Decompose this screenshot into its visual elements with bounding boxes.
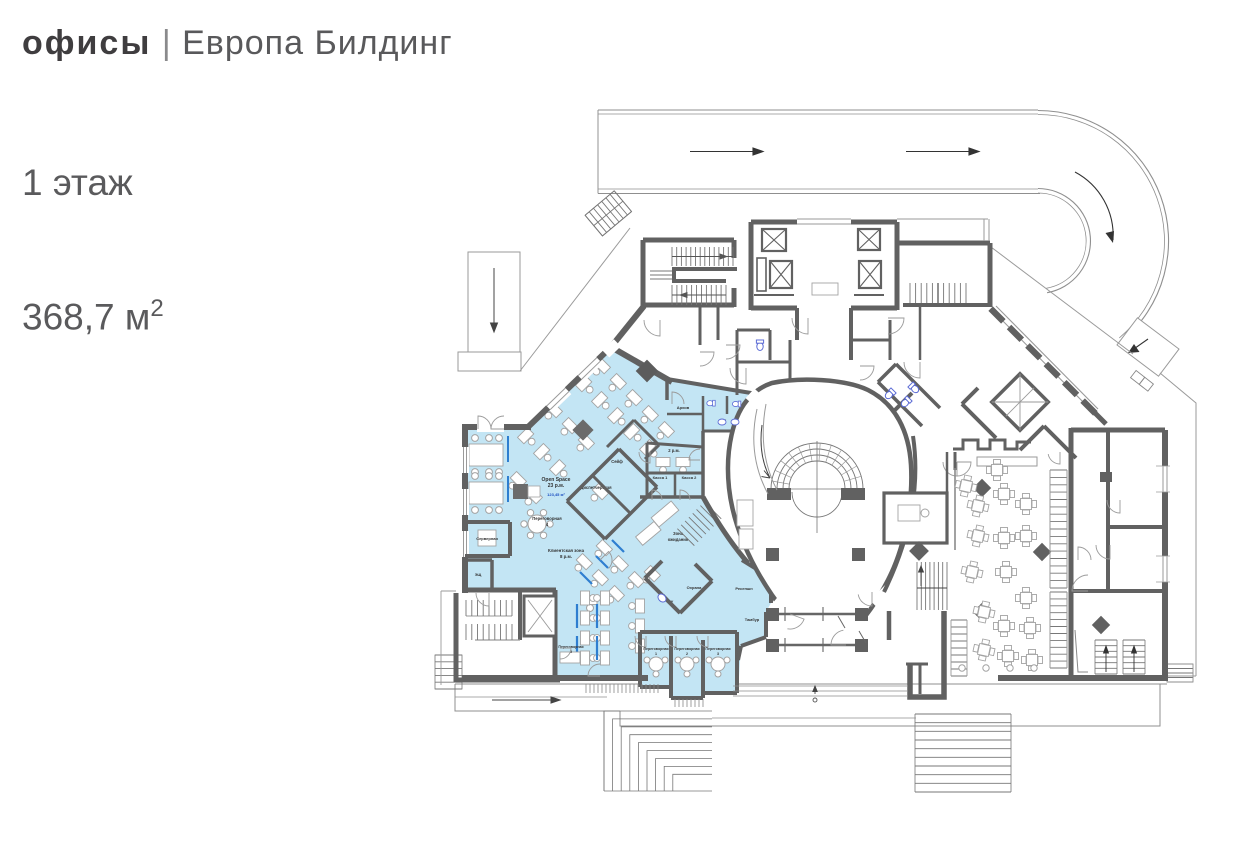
svg-text:1: 1 <box>655 652 657 656</box>
svg-text:2 р.м.: 2 р.м. <box>668 448 679 453</box>
svg-text:Касса 2: Касса 2 <box>682 475 698 480</box>
svg-text:Касса 1: Касса 1 <box>653 475 669 480</box>
svg-text:Переговорная: Переговорная <box>705 647 730 651</box>
svg-text:2: 2 <box>686 652 688 656</box>
svg-text:123,45 м²: 123,45 м² <box>547 492 565 497</box>
svg-text:Архив: Архив <box>677 405 690 410</box>
svg-text:ожидания: ожидания <box>668 537 689 542</box>
svg-text:Переговорная: Переговорная <box>643 647 668 651</box>
svg-text:Сейф: Сейф <box>611 459 623 464</box>
svg-text:Серверная: Серверная <box>476 536 498 541</box>
svg-text:Ресепшн: Ресепшн <box>735 586 753 591</box>
svg-text:23 р.м.: 23 р.м. <box>548 483 565 489</box>
svg-text:Клиентская зона: Клиентская зона <box>548 548 585 553</box>
svg-text:ЭЩ: ЭЩ <box>475 573 482 577</box>
svg-text:Тамбур: Тамбур <box>745 617 760 622</box>
svg-text:Переговорная: Переговорная <box>532 516 562 521</box>
svg-text:Охрана: Охрана <box>687 585 702 590</box>
svg-text:Переговорная: Переговорная <box>674 647 699 651</box>
svg-text:3: 3 <box>717 652 719 656</box>
svg-text:8 р.м.: 8 р.м. <box>560 554 572 559</box>
